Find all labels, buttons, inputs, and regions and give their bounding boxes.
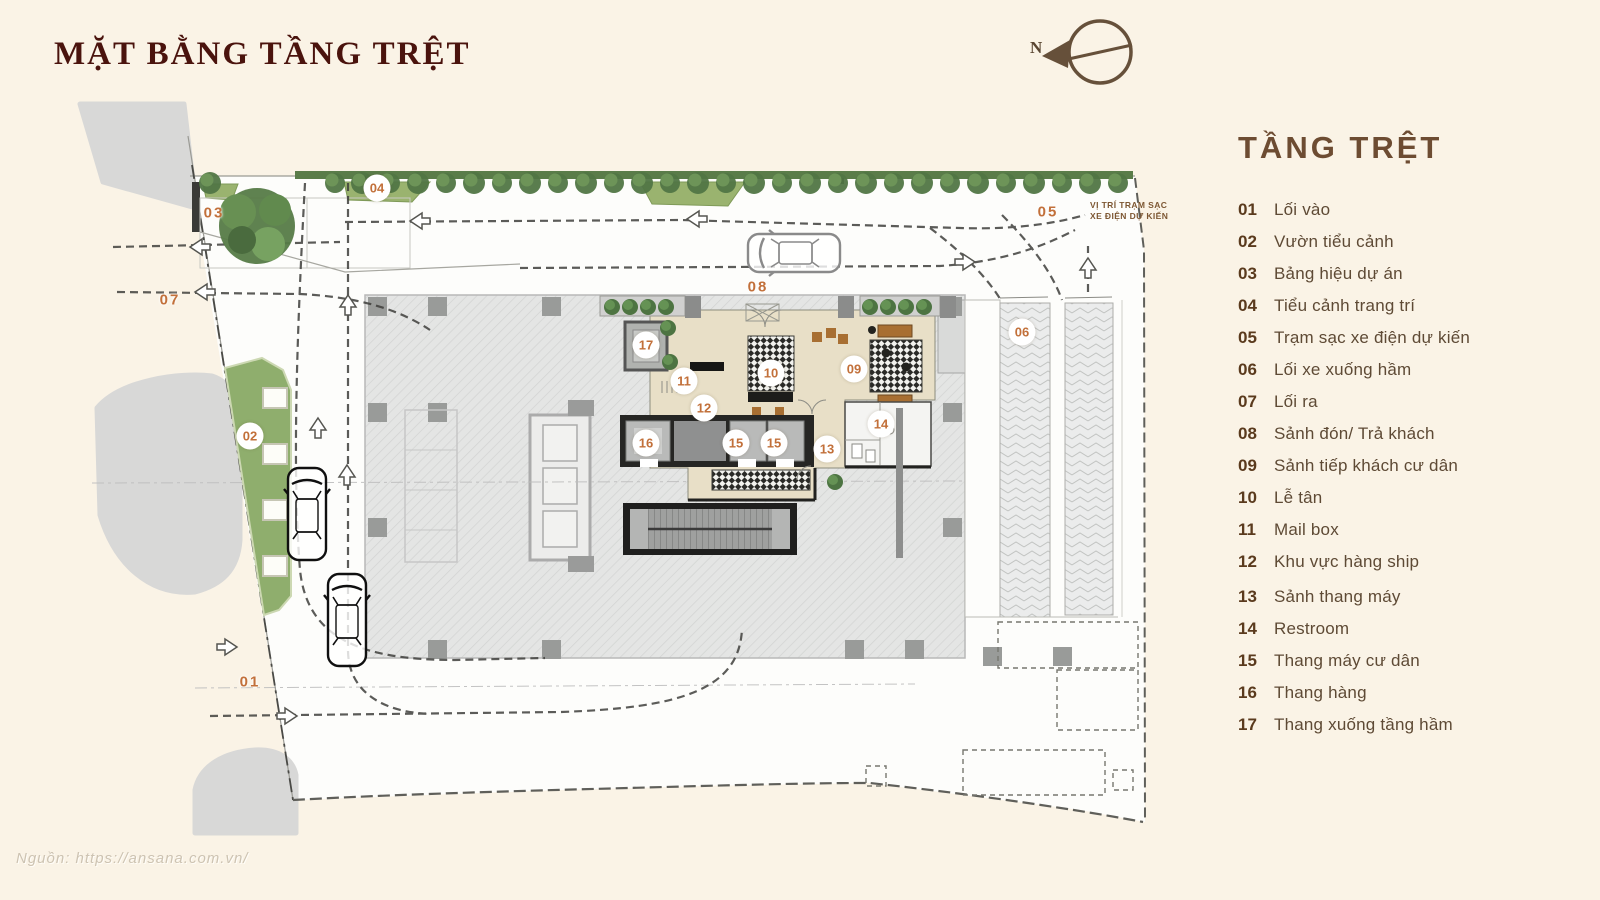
legend-item-04: 04Tiểu cảnh trang trí <box>1238 296 1588 318</box>
legend-item-label: Thang máy cư dân <box>1274 651 1420 671</box>
legend-item-07: 07Lối ra <box>1238 392 1588 414</box>
corridor-rug <box>712 470 810 490</box>
legend-item-number: 02 <box>1238 232 1274 252</box>
compass-icon <box>1042 21 1132 83</box>
legend-group: 07Lối ra08Sảnh đón/ Trả khách09Sảnh tiếp… <box>1238 392 1588 574</box>
legend-item-15: 15Thang máy cư dân <box>1238 651 1588 673</box>
legend-item-number: 01 <box>1238 200 1274 220</box>
legend-item-number: 06 <box>1238 360 1274 380</box>
elevator-core <box>620 415 814 467</box>
car-icon <box>324 574 370 666</box>
legend-item-label: Thang hàng <box>1274 683 1367 703</box>
legend-panel: TẦNG TRỆT 01Lối vào02Vườn tiểu cảnh03Bản… <box>1238 130 1588 747</box>
legend-item-label: Lối xe xuống hầm <box>1274 360 1411 380</box>
legend-item-05: 05Trạm sạc xe điện dự kiến <box>1238 328 1588 350</box>
legend-item-label: Lối vào <box>1274 200 1330 220</box>
floor-plan-drawing <box>0 0 1240 900</box>
legend-item-01: 01Lối vào <box>1238 200 1588 222</box>
legend-items: 01Lối vào02Vườn tiểu cảnh03Bảng hiệu dự … <box>1238 200 1588 737</box>
legend-item-label: Bảng hiệu dự án <box>1274 264 1403 284</box>
legend-item-label: Sảnh đón/ Trả khách <box>1274 424 1435 444</box>
legend-item-12: 12Khu vực hàng ship <box>1238 552 1588 574</box>
legend-item-number: 15 <box>1238 651 1274 671</box>
legend-item-label: Trạm sạc xe điện dự kiến <box>1274 328 1470 348</box>
legend-item-number: 05 <box>1238 328 1274 348</box>
legend-item-11: 11Mail box <box>1238 520 1588 542</box>
legend-item-08: 08Sảnh đón/ Trả khách <box>1238 424 1588 446</box>
legend-item-06: 06Lối xe xuống hầm <box>1238 360 1588 382</box>
legend-item-17: 17Thang xuống tầng hầm <box>1238 715 1588 737</box>
legend-item-number: 17 <box>1238 715 1274 735</box>
legend-item-label: Vườn tiểu cảnh <box>1274 232 1394 252</box>
escape-stair <box>623 503 797 555</box>
basement-car-ramp <box>965 297 1122 617</box>
legend-item-number: 09 <box>1238 456 1274 476</box>
legend-item-03: 03Bảng hiệu dự án <box>1238 264 1588 286</box>
legend-item-label: Tiểu cảnh trang trí <box>1274 296 1415 316</box>
legend-item-label: Khu vực hàng ship <box>1274 552 1419 572</box>
car-icon <box>748 230 840 276</box>
legend-item-10: 10Lễ tân <box>1238 488 1588 510</box>
legend-item-label: Restroom <box>1274 619 1349 639</box>
east-wall <box>896 408 903 558</box>
legend-item-number: 07 <box>1238 392 1274 412</box>
compass-north-label: N <box>1030 38 1042 58</box>
floor-plan: 010203040506070809101112131415151617 VỊ … <box>0 0 1240 900</box>
car-icon <box>284 468 330 560</box>
legend-item-number: 14 <box>1238 619 1274 639</box>
legend-item-number: 13 <box>1238 587 1274 607</box>
legend-item-number: 16 <box>1238 683 1274 703</box>
legend-item-16: 16Thang hàng <box>1238 683 1588 705</box>
legend-item-label: Sảnh tiếp khách cư dân <box>1274 456 1458 476</box>
legend-item-label: Sảnh thang máy <box>1274 587 1401 607</box>
legend-group: 01Lối vào02Vườn tiểu cảnh03Bảng hiệu dự … <box>1238 200 1588 382</box>
legend-item-label: Mail box <box>1274 520 1339 540</box>
legend-group: 13Sảnh thang máy14Restroom15Thang máy cư… <box>1238 587 1588 737</box>
legend-item-09: 09Sảnh tiếp khách cư dân <box>1238 456 1588 478</box>
legend-item-number: 04 <box>1238 296 1274 316</box>
source-credit: Nguồn: https://ansana.com.vn/ <box>16 850 248 867</box>
legend-heading: TẦNG TRỆT <box>1238 130 1588 166</box>
legend-item-label: Thang xuống tầng hầm <box>1274 715 1453 735</box>
restroom-area <box>845 402 931 466</box>
legend-item-number: 03 <box>1238 264 1274 284</box>
legend-item-number: 10 <box>1238 488 1274 508</box>
legend-item-label: Lễ tân <box>1274 488 1322 508</box>
big-tree-icon <box>219 188 295 264</box>
legend-item-number: 08 <box>1238 424 1274 444</box>
legend-item-13: 13Sảnh thang máy <box>1238 587 1588 609</box>
legend-item-number: 11 <box>1238 520 1274 540</box>
legend-item-label: Lối ra <box>1274 392 1318 412</box>
legend-item-number: 12 <box>1238 552 1274 572</box>
legend-item-02: 02Vườn tiểu cảnh <box>1238 232 1588 254</box>
legend-item-14: 14Restroom <box>1238 619 1588 641</box>
